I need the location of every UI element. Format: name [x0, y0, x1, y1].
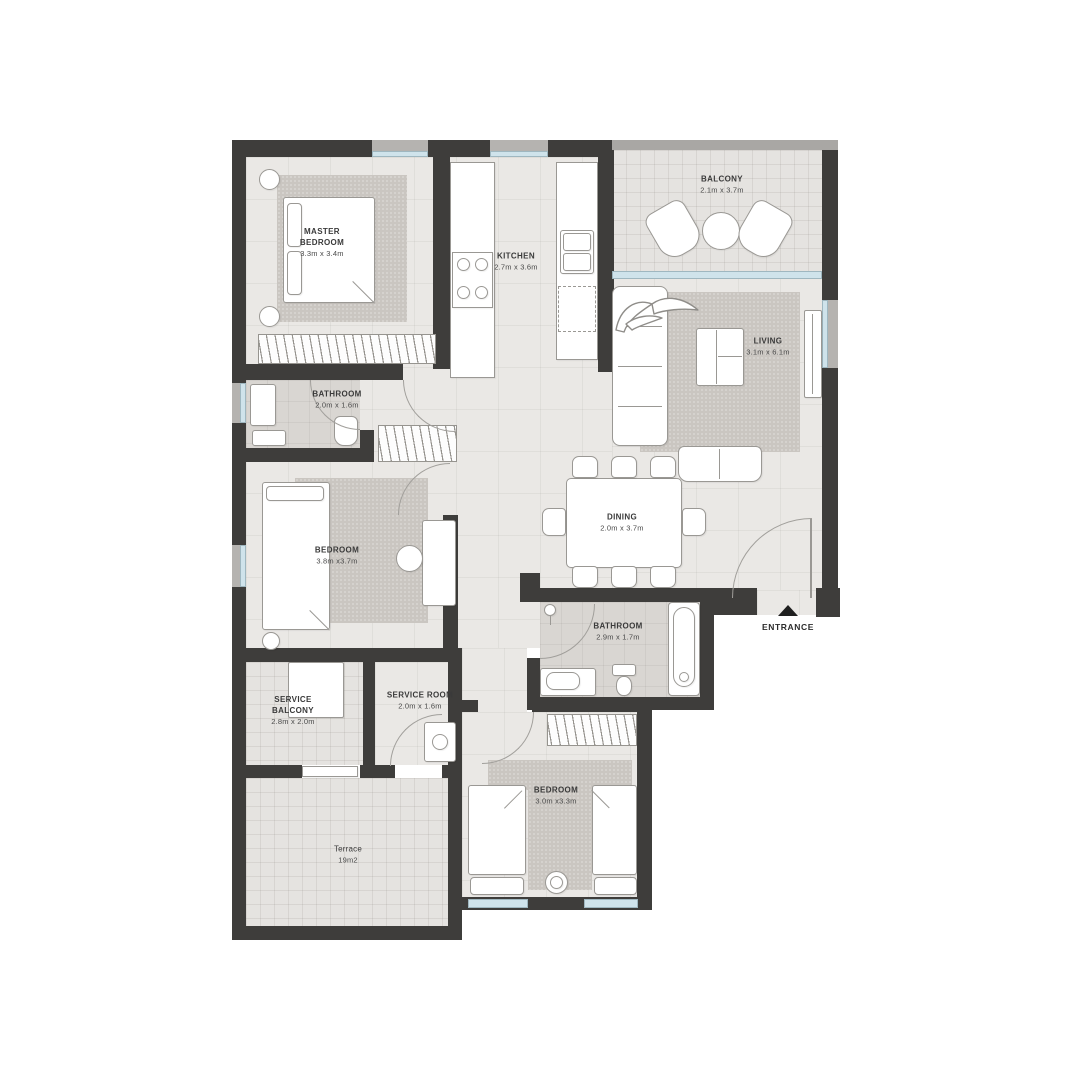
dining-chair: [572, 566, 598, 588]
nightstand-lamp: [262, 632, 280, 650]
room-label-bathroom-1: BATHROOM 2.0m x 1.6m: [297, 390, 377, 411]
sofa-cushion-line: [618, 406, 662, 407]
room-label-service-room: SERVICE ROOM 2.0m x 1.6m: [378, 691, 462, 712]
wall-segment: [363, 662, 375, 765]
room-dims: 3.3m x 3.4m: [294, 249, 350, 259]
room-label-service-balcony: SERVICE BALCONY 2.8m x 2.0m: [267, 695, 319, 727]
room-name: Terrace: [334, 845, 362, 854]
window-glass: [468, 899, 528, 908]
window-glass: [372, 151, 428, 157]
room-dims: 2.0m x 3.7m: [582, 523, 662, 533]
toilet-tank: [612, 664, 636, 676]
room-dims: 2.1m x 3.7m: [682, 185, 762, 195]
room-name: KITCHEN: [497, 252, 535, 261]
window-glass: [584, 899, 638, 908]
shower-tray: [252, 430, 286, 446]
room-dims: 2.8m x 2.0m: [267, 717, 319, 727]
desk: [422, 520, 456, 606]
loveseat: [678, 446, 762, 482]
room-label-bedroom-2: BEDROOM 3.0m x3.3m: [516, 786, 596, 807]
sofa-cushion-line: [618, 366, 662, 367]
floor-plan-canvas: ENTRANCE MASTER BEDROOM 3.3m x 3.4m KITC…: [0, 0, 1080, 1080]
terrace-door: [302, 766, 358, 777]
room-name: BEDROOM: [534, 786, 578, 795]
wall-segment: [527, 697, 714, 710]
wall-segment: [700, 588, 714, 710]
pillow: [266, 486, 324, 501]
window-glass: [822, 300, 828, 368]
stove-burner: [457, 258, 470, 271]
room-dims: 3.1m x 6.1m: [733, 347, 803, 357]
wall-segment: [232, 926, 462, 940]
room-label-kitchen: KITCHEN 2.7m x 3.6m: [481, 252, 551, 273]
room-name: BALCONY: [701, 175, 743, 184]
wall-segment: [527, 588, 714, 602]
wardrobe-hatch: [258, 334, 436, 364]
room-name: MASTER BEDROOM: [300, 227, 344, 247]
tv-console: [804, 310, 822, 398]
room-dims: 2.7m x 3.6m: [481, 262, 551, 272]
bathtub-drain: [679, 672, 689, 682]
dining-chair: [611, 456, 637, 478]
wall-segment: [822, 150, 838, 607]
loveseat-line: [719, 449, 720, 479]
window-glass: [240, 545, 246, 587]
entrance-label: ENTRANCE: [762, 622, 814, 632]
window-glass: [240, 383, 246, 423]
toilet-bowl: [616, 676, 632, 696]
tv-console-line: [812, 314, 813, 394]
wall-segment: [816, 588, 840, 617]
sink-bowl: [563, 253, 591, 271]
window-glass: [490, 151, 548, 157]
wall-segment: [520, 573, 540, 602]
balcony-table: [702, 212, 740, 250]
wall-segment: [462, 700, 478, 712]
balcony-parapet: [612, 140, 838, 150]
wall-segment: [637, 700, 652, 910]
wall-segment: [246, 364, 403, 380]
entrance-arrow: [778, 605, 798, 616]
room-dims: 2.0m x 1.6m: [297, 400, 377, 410]
vanity: [250, 384, 276, 426]
room-label-terrace: Terrace 19m2: [308, 845, 388, 866]
washbasin-bowl: [546, 672, 580, 690]
dining-chair: [572, 456, 598, 478]
dining-chair: [682, 508, 706, 536]
dining-chair: [650, 566, 676, 588]
room-name: LIVING: [754, 337, 783, 346]
wall-segment: [360, 765, 395, 778]
sink-bowl: [563, 233, 591, 251]
wall-segment: [232, 140, 246, 940]
room-label-bathroom-2: BATHROOM 2.9m x 1.7m: [578, 622, 658, 643]
wardrobe-hatch: [547, 714, 637, 746]
room-dims: 3.0m x3.3m: [516, 796, 596, 806]
floor-balcony: [612, 150, 822, 271]
bedside-bench: [470, 877, 524, 895]
room-name: SERVICE BALCONY: [272, 695, 314, 715]
room-dims: 2.0m x 1.6m: [378, 701, 462, 711]
appliance-dashed: [558, 286, 596, 332]
rug: [528, 760, 592, 890]
room-label-master-bedroom: MASTER BEDROOM 3.3m x 3.4m: [294, 227, 350, 259]
stove-burner: [457, 286, 470, 299]
room-name: DINING: [607, 513, 637, 522]
room-label-living: LIVING 3.1m x 6.1m: [733, 337, 803, 358]
dining-chair: [611, 566, 637, 588]
room-name: SERVICE ROOM: [387, 691, 453, 700]
stove-burner: [475, 286, 488, 299]
room-label-dining: DINING 2.0m x 3.7m: [582, 513, 662, 534]
bedside-bench: [594, 877, 637, 895]
room-dims: 19m2: [308, 855, 388, 865]
nightstand-lamp: [259, 306, 280, 327]
room-dims: 2.9m x 1.7m: [578, 632, 658, 642]
room-name: BATHROOM: [312, 390, 361, 399]
room-dims: 3.8m x3.7m: [297, 556, 377, 566]
room-name: BATHROOM: [593, 622, 642, 631]
room-name: BEDROOM: [315, 546, 359, 555]
nightstand-lamp: [259, 169, 280, 190]
plant: [606, 290, 702, 344]
coffee-table-line: [716, 330, 717, 384]
desk-chair: [396, 545, 423, 572]
wall-segment: [246, 448, 374, 462]
room-label-balcony: BALCONY 2.1m x 3.7m: [682, 175, 762, 196]
wall-segment: [232, 765, 302, 778]
wall-segment: [232, 648, 460, 662]
dining-chair: [650, 456, 676, 478]
sliding-window: [612, 271, 822, 279]
dining-chair: [542, 508, 566, 536]
stool-inner: [550, 876, 563, 889]
room-label-bedroom-1: BEDROOM 3.8m x3.7m: [297, 546, 377, 567]
